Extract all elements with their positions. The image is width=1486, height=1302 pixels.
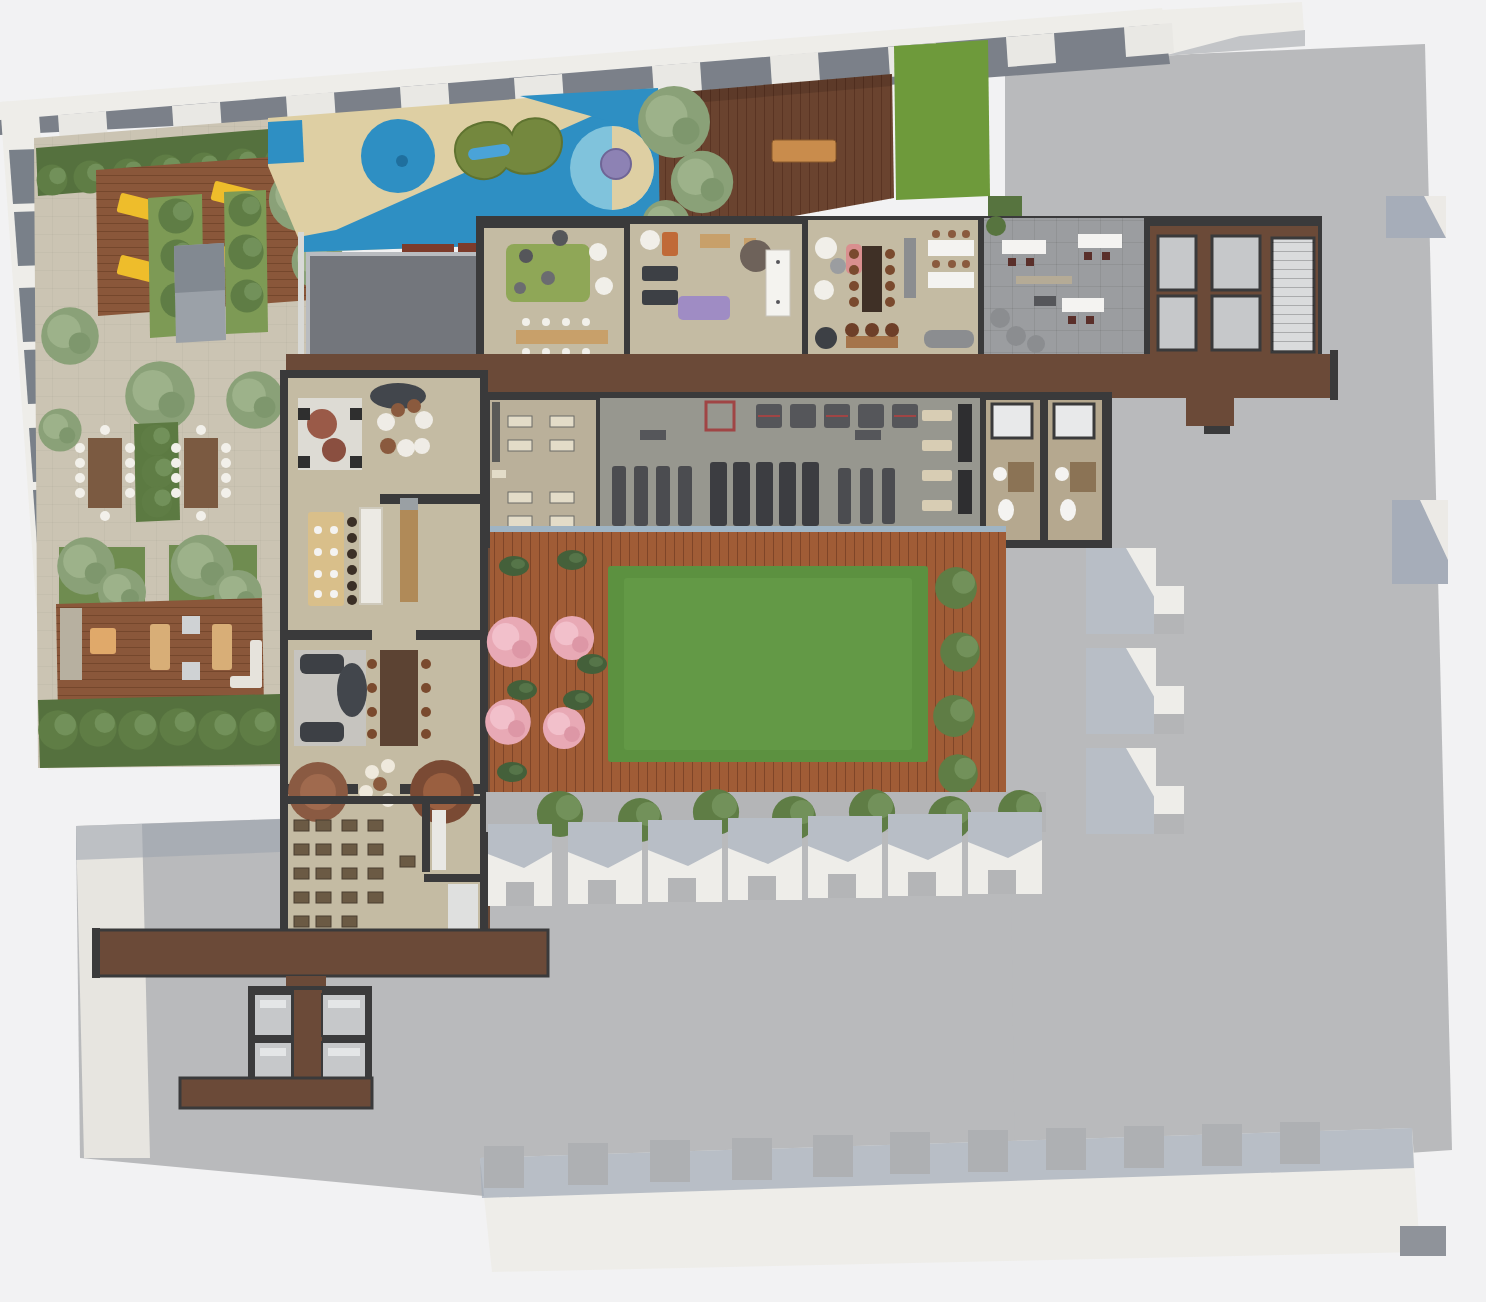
cafe-table bbox=[815, 237, 837, 259]
pouf bbox=[373, 777, 387, 791]
deck-lounger bbox=[150, 624, 170, 670]
deck-lounger bbox=[212, 624, 232, 670]
pantry-counter bbox=[432, 810, 446, 870]
lounge-chair bbox=[1006, 326, 1026, 346]
beanbag bbox=[519, 249, 533, 263]
treadmill bbox=[634, 466, 648, 526]
shower bbox=[1054, 404, 1094, 438]
beanbag bbox=[514, 282, 526, 294]
facade-tooth bbox=[890, 1132, 930, 1174]
brown-pouf bbox=[845, 323, 859, 337]
daybed bbox=[300, 654, 344, 674]
play-circle-left bbox=[361, 119, 435, 193]
coworking-room bbox=[984, 216, 1144, 354]
facade-dark-notch bbox=[1400, 1226, 1446, 1256]
parapet-tab bbox=[1124, 23, 1174, 57]
elevator-shaft bbox=[1212, 296, 1260, 350]
side-table bbox=[350, 456, 362, 468]
divider-wall bbox=[288, 630, 372, 640]
gym-mat bbox=[855, 430, 881, 440]
sink bbox=[1055, 467, 1069, 481]
corridor-stub-south bbox=[1186, 398, 1234, 426]
machine bbox=[790, 404, 816, 428]
treadmill bbox=[779, 462, 796, 526]
daybed bbox=[300, 722, 344, 742]
treadmill bbox=[612, 466, 626, 526]
pantry-partition bbox=[424, 874, 486, 882]
floorplan-stage bbox=[0, 0, 1486, 1302]
play-umbrella bbox=[601, 149, 631, 179]
plant bbox=[986, 216, 1006, 236]
corner-seat bbox=[90, 628, 116, 654]
pouf bbox=[595, 277, 613, 295]
facade-tooth bbox=[968, 1130, 1008, 1172]
yoga-mat bbox=[678, 296, 730, 320]
cafe-table bbox=[814, 280, 834, 300]
stone-path bbox=[60, 608, 82, 680]
deck-bench bbox=[772, 140, 836, 162]
lounge-bar bbox=[808, 220, 978, 354]
marble-bar bbox=[360, 508, 382, 604]
facade-tooth bbox=[813, 1135, 853, 1177]
facade-tooth bbox=[1046, 1128, 1086, 1170]
weight-machines bbox=[756, 404, 918, 428]
communal-bar-table bbox=[862, 246, 882, 312]
kids-table bbox=[516, 330, 608, 344]
facade-tooth bbox=[1124, 1126, 1164, 1168]
bistro-table bbox=[397, 439, 415, 457]
pantry-wall bbox=[422, 800, 430, 872]
lounge-chair bbox=[1027, 335, 1045, 353]
gray-pouf bbox=[830, 258, 846, 274]
dumbbell-rack bbox=[958, 470, 972, 514]
treadmill bbox=[710, 462, 727, 526]
treadmill bbox=[860, 468, 873, 524]
games-table bbox=[380, 650, 418, 746]
terrace bbox=[488, 824, 552, 906]
facade-tooth bbox=[1280, 1122, 1320, 1164]
lawn-light bbox=[624, 578, 912, 750]
bistro-table bbox=[377, 413, 395, 431]
white-table bbox=[928, 240, 974, 256]
leather-chair bbox=[307, 409, 337, 439]
lounge-chair bbox=[990, 308, 1010, 328]
parapet-tab bbox=[1006, 33, 1056, 67]
terraces-east bbox=[1086, 548, 1184, 834]
terrace bbox=[568, 822, 642, 904]
right-slab bbox=[1005, 44, 1452, 1180]
elevator-shaft bbox=[1158, 296, 1196, 350]
terraces-south bbox=[488, 812, 1042, 906]
armchair bbox=[662, 232, 678, 256]
beanbag bbox=[541, 271, 555, 285]
folding-screen bbox=[766, 250, 790, 316]
treadmill bbox=[733, 462, 750, 526]
amenity-rooms-row bbox=[476, 216, 1322, 362]
vanity bbox=[1070, 462, 1096, 492]
massage-lounger bbox=[642, 266, 678, 281]
facade-tooth bbox=[484, 1146, 524, 1188]
paver-strip bbox=[76, 824, 150, 1158]
facade-tooth bbox=[732, 1138, 772, 1180]
stair-treads bbox=[1272, 238, 1314, 352]
toilet bbox=[998, 499, 1014, 521]
terrace bbox=[968, 812, 1042, 894]
screen-dot bbox=[776, 260, 780, 264]
side-table bbox=[350, 408, 362, 420]
pergola-roof-shade bbox=[174, 243, 225, 293]
corridor-stub-cap bbox=[1204, 426, 1230, 434]
toilet bbox=[1060, 499, 1076, 521]
corridor-end-wall bbox=[1330, 350, 1338, 400]
canopy-parapet bbox=[298, 232, 304, 360]
gym-mat bbox=[640, 430, 666, 440]
gray-sofa bbox=[924, 330, 974, 348]
elevator-shaft bbox=[1212, 236, 1260, 290]
changing-rooms bbox=[986, 396, 1102, 544]
side-table bbox=[298, 408, 310, 420]
work-table bbox=[1078, 234, 1122, 248]
play-blue-wedge bbox=[268, 120, 304, 164]
deck-table bbox=[182, 616, 200, 634]
dark-pouf bbox=[815, 327, 837, 349]
pouf bbox=[589, 243, 607, 261]
courtyard-north-parapet bbox=[490, 526, 1006, 532]
terrace bbox=[888, 814, 962, 896]
facade-tooth bbox=[568, 1143, 608, 1185]
floorplan-svg bbox=[0, 0, 1486, 1302]
pouf bbox=[391, 403, 405, 417]
dark-sofa bbox=[337, 663, 367, 717]
pouf bbox=[414, 438, 430, 454]
bistro-table bbox=[415, 411, 433, 429]
screening-wall bbox=[288, 796, 488, 804]
residents-lounge bbox=[280, 370, 488, 954]
shower bbox=[992, 404, 1032, 438]
corridor-west bbox=[96, 930, 548, 976]
brown-pouf bbox=[865, 323, 879, 337]
divider-wall bbox=[416, 630, 488, 640]
wood-counter bbox=[400, 506, 418, 602]
beanbag bbox=[552, 230, 568, 246]
facade-tooth bbox=[1202, 1124, 1242, 1166]
deck-table bbox=[182, 662, 200, 680]
dark-mat bbox=[1034, 296, 1056, 306]
dining-table bbox=[184, 438, 218, 508]
work-table bbox=[1062, 298, 1104, 312]
work-table bbox=[1002, 240, 1046, 254]
treadmill bbox=[656, 466, 670, 526]
elevator-door-strip bbox=[260, 1000, 286, 1008]
vanity bbox=[1008, 462, 1034, 492]
gym-row bbox=[482, 392, 1112, 548]
terrace bbox=[728, 818, 802, 900]
facade-tooth bbox=[650, 1140, 690, 1182]
treatment-room bbox=[630, 224, 802, 356]
elevator-shaft bbox=[1158, 236, 1196, 290]
round-rug-inner bbox=[300, 774, 336, 810]
communal-table bbox=[308, 512, 344, 606]
wc-partition bbox=[1040, 396, 1048, 544]
lobby-wood-strip bbox=[294, 990, 322, 1086]
courtyard bbox=[485, 526, 1046, 842]
treadmill bbox=[802, 462, 819, 526]
pouf bbox=[407, 399, 421, 413]
round-pouf bbox=[640, 230, 660, 250]
treadmill bbox=[678, 466, 692, 526]
wood-bench bbox=[700, 234, 730, 248]
screen-dot bbox=[776, 300, 780, 304]
treadmill bbox=[882, 468, 895, 524]
kitchen-counter bbox=[904, 238, 916, 298]
treadmill bbox=[756, 462, 773, 526]
side-table bbox=[298, 456, 310, 468]
elevator-core bbox=[1150, 226, 1318, 358]
studio-bench bbox=[492, 470, 506, 478]
lounge-suite-2 bbox=[308, 498, 418, 606]
brown-pouf bbox=[885, 323, 899, 337]
low-table bbox=[846, 336, 898, 348]
studio-lockers bbox=[492, 402, 500, 462]
elevator-door-strip bbox=[328, 1048, 360, 1056]
corner-sofa bbox=[250, 640, 262, 688]
machine bbox=[858, 404, 884, 428]
grass-strip bbox=[894, 40, 990, 200]
terrace bbox=[808, 816, 882, 898]
fitness-studio bbox=[490, 400, 596, 540]
dumbbell-rack bbox=[958, 404, 972, 462]
corridor-south bbox=[180, 1078, 372, 1108]
dining-table bbox=[88, 438, 122, 508]
leather-chair bbox=[322, 438, 346, 462]
corridor-west-cap bbox=[92, 928, 100, 978]
elevator-door-strip bbox=[260, 1048, 286, 1056]
kids-room bbox=[484, 228, 624, 356]
canopy bbox=[306, 252, 483, 358]
pouf bbox=[380, 438, 396, 454]
treadmill bbox=[838, 468, 851, 524]
gym bbox=[600, 398, 980, 546]
elevator-door-strip bbox=[328, 1000, 360, 1008]
counter-cap bbox=[400, 498, 418, 510]
terrace bbox=[648, 820, 722, 902]
play-bench bbox=[402, 244, 454, 253]
divider-wall bbox=[380, 494, 488, 504]
play-circle-left-dot bbox=[396, 155, 408, 167]
long-counter bbox=[1016, 276, 1072, 284]
sink bbox=[993, 467, 1007, 481]
white-table bbox=[928, 272, 974, 288]
massage-lounger bbox=[642, 290, 678, 305]
